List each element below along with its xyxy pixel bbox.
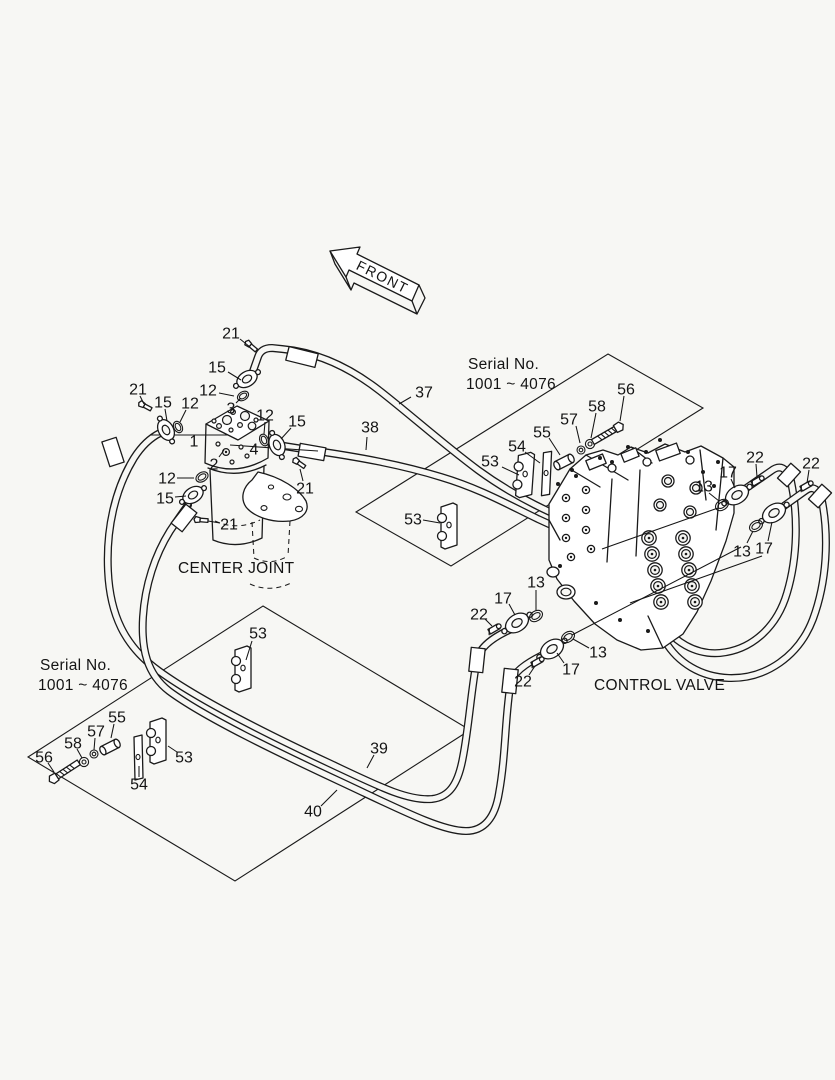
center-joint-caption: CENTER JOINT: [178, 560, 295, 577]
control-valve-caption: CONTROL VALVE: [594, 677, 725, 694]
callout-label-13: 13: [589, 645, 607, 662]
callout-label-13: 13: [695, 479, 713, 496]
callout-label-22: 22: [802, 456, 820, 473]
callout-label-12: 12: [256, 408, 274, 425]
callout-label-4: 4: [250, 442, 259, 459]
callout-label-58: 58: [64, 736, 82, 753]
callout-label-3: 3: [227, 401, 236, 418]
callout-label-21: 21: [220, 517, 238, 534]
callout-label-17: 17: [755, 541, 773, 558]
callout-label-58: 58: [588, 399, 606, 416]
callout-label-54: 54: [130, 777, 148, 794]
callout-label-13: 13: [527, 575, 545, 592]
callout-label-53: 53: [249, 626, 267, 643]
callout-label-38: 38: [361, 420, 379, 437]
callout-label-17: 17: [562, 662, 580, 679]
callout-label-21: 21: [296, 481, 314, 498]
callout-label-15: 15: [156, 491, 174, 508]
callout-label-53: 53: [481, 454, 499, 471]
serial-note-upper-line1: Serial No.: [468, 356, 539, 373]
callout-label-15: 15: [288, 414, 306, 431]
hose-clamp-53-lower-left: [147, 718, 167, 764]
callout-label-56: 56: [617, 382, 635, 399]
callout-label-12: 12: [158, 471, 176, 488]
hydraulic-piping-diagram: Serial No. 1001 ~ 4076 Serial No. 1001 ~…: [0, 0, 835, 1080]
hose-clamp-53-middle: [438, 503, 458, 549]
callout-label-17: 17: [719, 465, 737, 482]
callout-label-12: 12: [199, 383, 217, 400]
callout-label-55: 55: [108, 710, 126, 727]
callout-label-56: 56: [35, 750, 53, 767]
callout-label-21: 21: [129, 382, 147, 399]
callout-label-53: 53: [404, 512, 422, 529]
callout-label-53: 53: [175, 750, 193, 767]
callout-label-57: 57: [87, 724, 105, 741]
parts-diagram-page: Serial No. 1001 ~ 4076 Serial No. 1001 ~…: [0, 0, 835, 1080]
callout-label-22: 22: [746, 450, 764, 467]
callout-label-39: 39: [370, 741, 388, 758]
callout-label-40: 40: [304, 804, 322, 821]
callout-label-22: 22: [514, 674, 532, 691]
callout-label-13: 13: [733, 544, 751, 561]
callout-label-54: 54: [508, 439, 526, 456]
callout-label-1: 1: [190, 434, 199, 451]
serial-note-lower-line2: 1001 ~ 4076: [38, 677, 128, 694]
callout-label-22: 22: [470, 607, 488, 624]
callout-label-15: 15: [208, 360, 226, 377]
callout-label-57: 57: [560, 412, 578, 429]
callout-label-55: 55: [533, 425, 551, 442]
callout-label-12: 12: [181, 396, 199, 413]
callout-label-15: 15: [154, 395, 172, 412]
serial-note-upper-line2: 1001 ~ 4076: [466, 376, 556, 393]
callout-label-17: 17: [494, 591, 512, 608]
callout-label-37: 37: [415, 385, 433, 402]
callout-label-2: 2: [210, 457, 219, 474]
callout-label-21: 21: [222, 326, 240, 343]
serial-note-lower-line1: Serial No.: [40, 657, 111, 674]
